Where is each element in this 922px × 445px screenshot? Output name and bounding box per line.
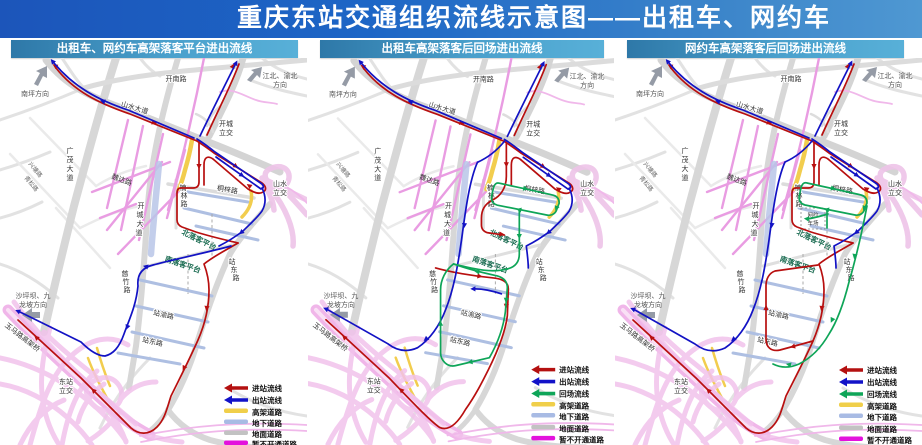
svg-text:进站流线: 进站流线 xyxy=(559,365,589,375)
svg-text:暂不开通道路: 暂不开通道路 xyxy=(559,434,604,444)
svg-text:地下道路: 地下道路 xyxy=(867,412,897,422)
svg-text:进站流线: 进站流线 xyxy=(867,365,897,375)
svg-text:地下道路: 地下道路 xyxy=(252,418,282,428)
svg-text:出站流线: 出站流线 xyxy=(867,377,897,387)
svg-text:高架道路: 高架道路 xyxy=(867,401,897,411)
svg-text:出站流线: 出站流线 xyxy=(252,395,282,405)
svg-text:出站流线: 出站流线 xyxy=(559,377,589,387)
svg-text:回场流线: 回场流线 xyxy=(867,389,897,399)
svg-text:回场流线: 回场流线 xyxy=(559,389,589,399)
svg-text:地面道路: 地面道路 xyxy=(252,429,282,439)
svg-text:地面道路: 地面道路 xyxy=(559,423,589,433)
svg-text:地下道路: 地下道路 xyxy=(559,411,589,421)
svg-text:暂不开通道路: 暂不开通道路 xyxy=(867,435,912,445)
svg-text:高架道路: 高架道路 xyxy=(252,407,282,417)
svg-text:地面道路: 地面道路 xyxy=(867,424,897,434)
svg-text:暂不开通道路: 暂不开通道路 xyxy=(252,439,297,445)
svg-text:车场: 车场 xyxy=(807,219,819,227)
svg-text:高架道路: 高架道路 xyxy=(559,400,589,410)
svg-text:进站流线: 进站流线 xyxy=(252,383,282,393)
